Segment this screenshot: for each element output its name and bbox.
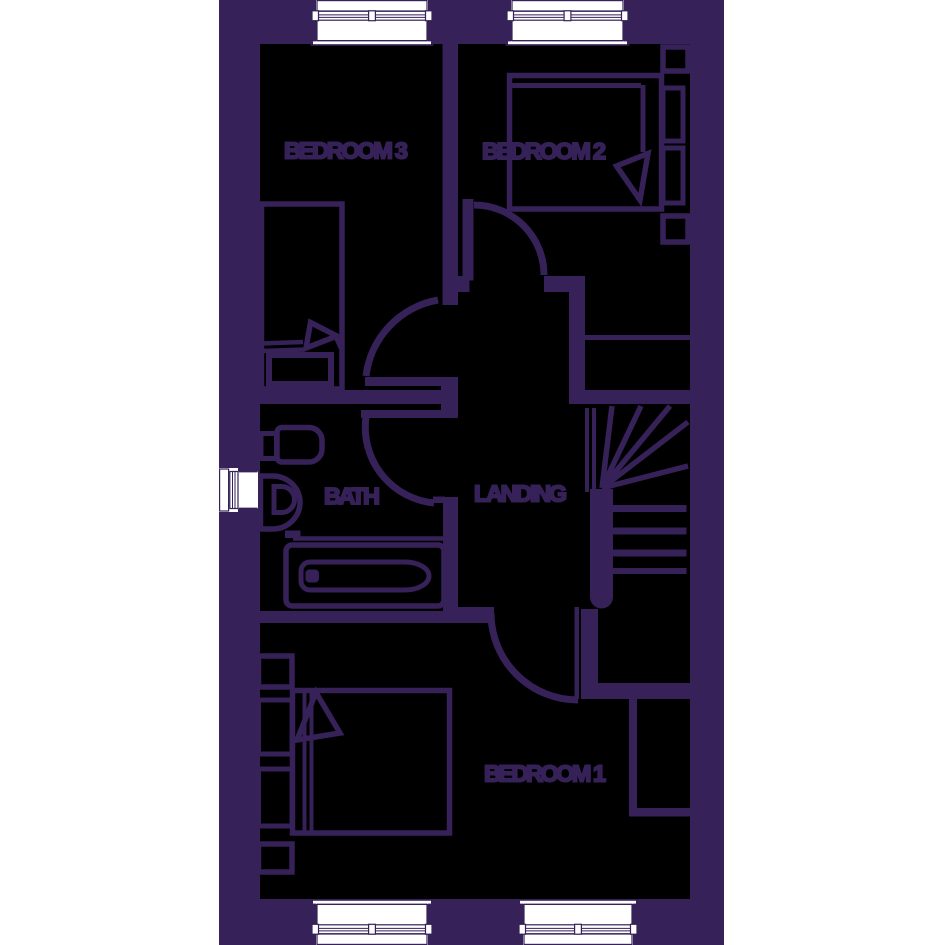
svg-text:BEDROOM 2: BEDROOM 2 <box>482 138 606 164</box>
svg-text:BEDROOM 1: BEDROOM 1 <box>484 761 606 787</box>
svg-text:BEDROOM 3: BEDROOM 3 <box>284 138 408 164</box>
svg-text:BATH: BATH <box>324 483 380 509</box>
svg-text:LANDING: LANDING <box>474 481 567 507</box>
